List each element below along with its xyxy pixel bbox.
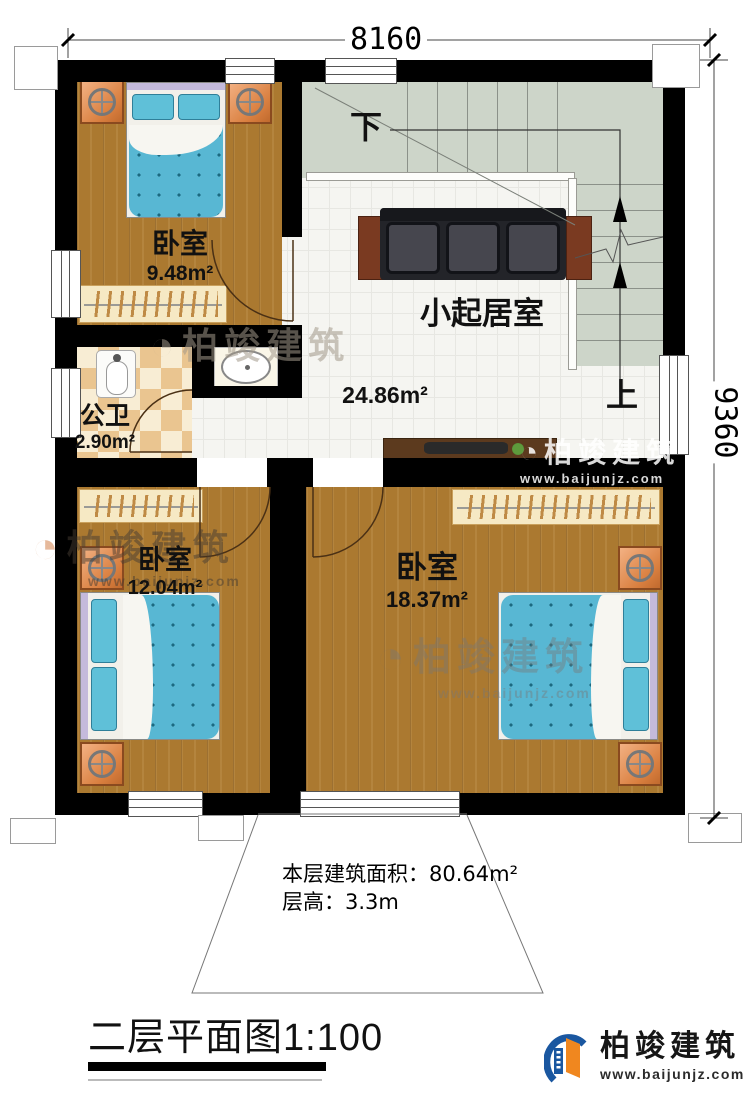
room-label-bathroom: 公卫 2.90m² — [60, 396, 150, 454]
room-name: 卧室 — [95, 538, 235, 577]
watermark-logo-icon: ◔ — [32, 526, 59, 570]
dimension-right: 9360 — [708, 381, 743, 463]
room-label-bedroom-bottom-left: 卧室 12.04m² — [95, 538, 235, 600]
bed-top-left — [126, 82, 226, 218]
squat-toilet-flush — [113, 354, 121, 362]
squat-toilet-basin — [106, 361, 128, 395]
sofa-cushion — [386, 222, 440, 274]
wall-middle-pier — [267, 458, 313, 487]
pillow — [91, 599, 117, 663]
brand-logo: 柏竣建筑 www.baijunjz.com — [544, 1030, 745, 1088]
room-label-living: 小起居室 — [412, 288, 552, 333]
title-text: 二层平面图 — [88, 1017, 283, 1059]
exterior-box — [10, 818, 56, 844]
room-area: 9.48m² — [110, 262, 250, 286]
nightstand — [618, 546, 662, 590]
nightstand — [228, 80, 272, 124]
headboard — [81, 593, 88, 739]
sofa-armrest — [566, 216, 592, 280]
lamp-icon — [626, 554, 654, 582]
floor-height-note: 层高：3.3m — [282, 886, 399, 916]
wall-bedroom-divider — [270, 487, 306, 793]
pillow — [91, 667, 117, 731]
window — [225, 58, 275, 84]
watermark: ◔ 柏竣建筑 — [150, 326, 350, 366]
brand-url: www.baijunjz.com — [600, 1066, 745, 1082]
wall-sink-bottom — [214, 386, 278, 398]
exterior-box — [688, 813, 742, 843]
nightstand — [80, 80, 124, 124]
room-area: 2.90m² — [60, 432, 150, 454]
title-underline-thick — [88, 1062, 326, 1071]
wardrobe — [79, 285, 227, 323]
nightstand — [80, 742, 124, 786]
room-area: 18.37m² — [352, 587, 502, 613]
window — [325, 58, 397, 84]
watermark: ◔ 柏竣建筑 www.baijunjz.com — [376, 634, 591, 700]
title-scale: 1:100 — [283, 1017, 383, 1059]
lamp-icon — [88, 88, 116, 116]
watermark-url: www.baijunjz.com — [438, 686, 591, 700]
window — [128, 791, 203, 817]
stair-up-label: 上 — [606, 370, 638, 416]
room-label-bedroom-bottom-right: 卧室 18.37m² — [352, 542, 502, 613]
wardrobe — [79, 489, 203, 523]
hanger-icons — [88, 495, 194, 517]
pillow — [623, 667, 649, 731]
bed-sheet — [591, 595, 621, 739]
hanger-icons — [461, 495, 651, 519]
sofa — [380, 208, 566, 280]
room-area-living: 24.86m² — [330, 382, 440, 409]
pillow — [623, 599, 649, 663]
exterior-box — [198, 815, 244, 841]
watermark-text: 柏竣建筑 — [413, 639, 589, 677]
exterior-box — [14, 46, 58, 90]
wardrobe — [452, 489, 660, 525]
window — [300, 791, 460, 817]
hanger-icons — [88, 291, 218, 316]
room-name: 公卫 — [60, 396, 150, 432]
room-area: 24.86m² — [330, 382, 440, 409]
lamp-icon — [236, 88, 264, 116]
room-name: 小起居室 — [412, 288, 552, 333]
watermark-text: 柏竣建筑 — [544, 439, 680, 467]
room-area: 12.04m² — [95, 577, 235, 600]
sofa-cushion — [506, 222, 560, 274]
room-name: 卧室 — [110, 222, 250, 262]
brand-logo-icon — [544, 1030, 592, 1088]
brand-name: 柏竣建筑 — [600, 1030, 745, 1063]
headboard — [650, 593, 657, 739]
exterior-box — [652, 44, 700, 88]
wall-middle-left — [55, 458, 197, 487]
nightstand — [618, 742, 662, 786]
watermark: ◔ 柏竣建筑 www.baijunjz.com — [520, 438, 680, 485]
floor-area-note: 本层建筑面积：80.64m² — [282, 858, 518, 888]
lamp-icon — [88, 750, 116, 778]
room-name: 卧室 — [352, 542, 502, 587]
pillow — [132, 94, 174, 120]
floor-plan-canvas: ◔ 柏竣建筑 ◔ 柏竣建筑 www.baijunjz.com ◔ 柏竣建筑 ww… — [0, 0, 750, 1104]
dimension-top: 8160 — [345, 22, 427, 57]
watermark-url: www.baijunjz.com — [520, 472, 680, 485]
wall-bedroom-stair — [282, 60, 302, 237]
watermark-text: 柏竣建筑 — [182, 328, 350, 364]
room-label-bedroom-top-left: 卧室 9.48m² — [110, 222, 250, 286]
watermark-logo-icon: ◔ — [520, 438, 538, 468]
lamp-icon — [626, 750, 654, 778]
headboard — [127, 83, 225, 90]
drawing-title: 二层平面图1:100 — [88, 1006, 383, 1061]
tv-icon — [424, 442, 508, 454]
pillow — [178, 94, 220, 120]
stair-down-label: 下 — [350, 102, 382, 148]
watermark-logo-icon: ◔ — [376, 634, 405, 682]
bed-bottom-left — [80, 592, 220, 740]
squat-toilet-icon — [96, 350, 136, 398]
sofa-cushion — [446, 222, 500, 274]
bed-sheet — [123, 595, 153, 739]
window — [51, 250, 81, 318]
stair-guard-wall-horizontal — [306, 172, 575, 181]
watermark-logo-icon: ◔ — [150, 326, 174, 366]
title-underline-thin — [88, 1079, 322, 1081]
sofa-back — [380, 208, 566, 221]
